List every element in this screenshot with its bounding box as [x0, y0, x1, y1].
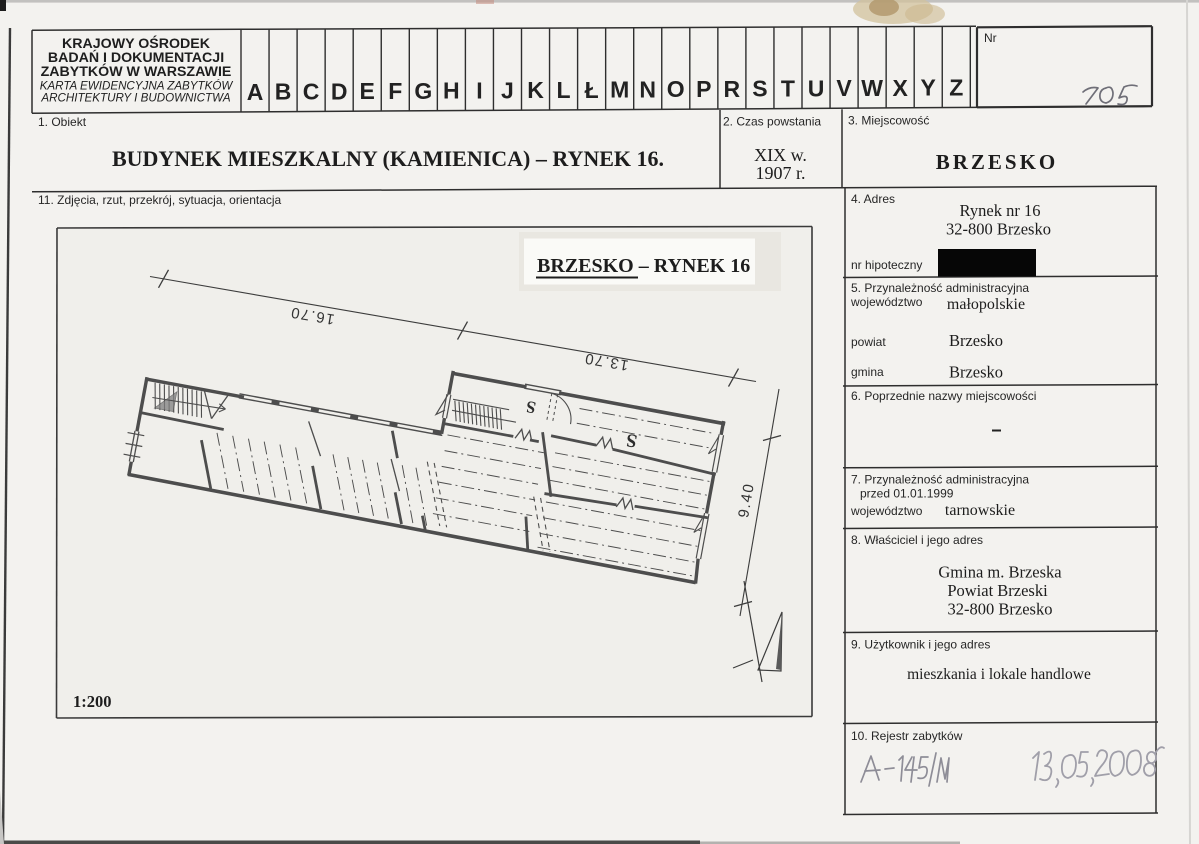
svg-text:11. Zdjęcia, rzut, przekrój, s: 11. Zdjęcia, rzut, przekrój, sytuacja, o… — [38, 193, 282, 207]
svg-text:Z: Z — [949, 75, 963, 101]
svg-text:O: O — [667, 76, 685, 102]
svg-text:1907 r.: 1907 r. — [755, 163, 805, 183]
svg-text:małopolskie: małopolskie — [947, 296, 1025, 313]
svg-text:Rynek nr 16: Rynek nr 16 — [960, 201, 1041, 220]
svg-text:32-800 Brzesko: 32-800 Brzesko — [948, 600, 1053, 619]
svg-text:R: R — [724, 76, 741, 102]
svg-text:B: B — [275, 79, 292, 105]
svg-text:T: T — [781, 76, 795, 102]
svg-text:N: N — [639, 76, 656, 102]
svg-text:Gmina m. Brzeska: Gmina m. Brzeska — [938, 563, 1062, 582]
svg-text:ZABYTKÓW W WARSZAWIE: ZABYTKÓW W WARSZAWIE — [41, 62, 232, 80]
svg-text:K: K — [527, 77, 544, 103]
svg-text:1. Obiekt: 1. Obiekt — [38, 115, 87, 129]
svg-text:7. Przynależność administracyj: 7. Przynależność administracyjna — [851, 473, 1029, 487]
svg-text:W: W — [861, 75, 883, 101]
svg-text:5. Przynależność administracyj: 5. Przynależność administracyjna — [851, 281, 1029, 295]
svg-text:E: E — [360, 78, 375, 104]
svg-text:BRZESKO – RYNEK 16: BRZESKO – RYNEK 16 — [537, 255, 750, 277]
svg-text:województwo: województwo — [850, 295, 923, 309]
svg-text:województwo: województwo — [850, 504, 923, 518]
svg-text:BRZESKO: BRZESKO — [936, 150, 1059, 174]
svg-text:A: A — [247, 79, 264, 105]
svg-text:gmina: gmina — [851, 365, 884, 379]
svg-text:I: I — [476, 77, 482, 103]
svg-text:1:200: 1:200 — [73, 692, 112, 711]
svg-text:P: P — [696, 76, 711, 102]
svg-text:Powiat Brzeski: Powiat Brzeski — [947, 581, 1048, 600]
svg-text:BUDYNEK MIESZKALNY (KAMIENICA): BUDYNEK MIESZKALNY (KAMIENICA) – RYNEK 1… — [112, 146, 664, 171]
svg-text:Ł: Ł — [585, 77, 599, 103]
svg-text:mieszkania i lokale handlowe: mieszkania i lokale handlowe — [907, 666, 1091, 683]
svg-text:4. Adres: 4. Adres — [851, 192, 895, 206]
svg-text:XIX w.: XIX w. — [754, 145, 807, 165]
svg-text:D: D — [331, 78, 348, 104]
svg-text:Nr: Nr — [984, 31, 997, 45]
svg-text:32-800 Brzesko: 32-800 Brzesko — [946, 220, 1051, 239]
svg-text:przed 01.01.1999: przed 01.01.1999 — [860, 487, 954, 501]
svg-text:10. Rejestr zabytków: 10. Rejestr zabytków — [851, 729, 963, 743]
svg-text:M: M — [610, 77, 629, 103]
svg-text:2. Czas powstania: 2. Czas powstania — [723, 115, 821, 129]
svg-text:tarnowskie: tarnowskie — [945, 502, 1015, 519]
svg-text:L: L — [557, 77, 571, 103]
svg-text:U: U — [808, 75, 825, 101]
svg-text:S: S — [752, 76, 767, 102]
svg-text:3. Miejscowość: 3. Miejscowość — [848, 114, 929, 128]
svg-text:Brzesko: Brzesko — [949, 363, 1003, 382]
svg-text:nr hipoteczny: nr hipoteczny — [851, 258, 922, 272]
svg-text:powiat: powiat — [851, 335, 886, 349]
svg-text:Brzesko: Brzesko — [949, 331, 1003, 350]
svg-text:V: V — [836, 75, 852, 101]
svg-text:C: C — [303, 78, 320, 104]
svg-text:ARCHITEKTURY I BUDOWNICTWA: ARCHITEKTURY I BUDOWNICTWA — [40, 92, 230, 105]
svg-text:Y: Y — [921, 75, 936, 101]
svg-text:G: G — [414, 78, 432, 104]
svg-text:8. Właściciel i jego adres: 8. Właściciel i jego adres — [851, 533, 983, 547]
svg-text:J: J — [501, 77, 514, 103]
svg-text:X: X — [892, 75, 908, 101]
svg-text:9. Użytkownik i jego adres: 9. Użytkownik i jego adres — [851, 638, 990, 652]
svg-text:F: F — [388, 78, 402, 104]
svg-text:6. Poprzednie nazwy miejscowoś: 6. Poprzednie nazwy miejscowości — [851, 389, 1036, 403]
svg-text:H: H — [443, 78, 460, 104]
